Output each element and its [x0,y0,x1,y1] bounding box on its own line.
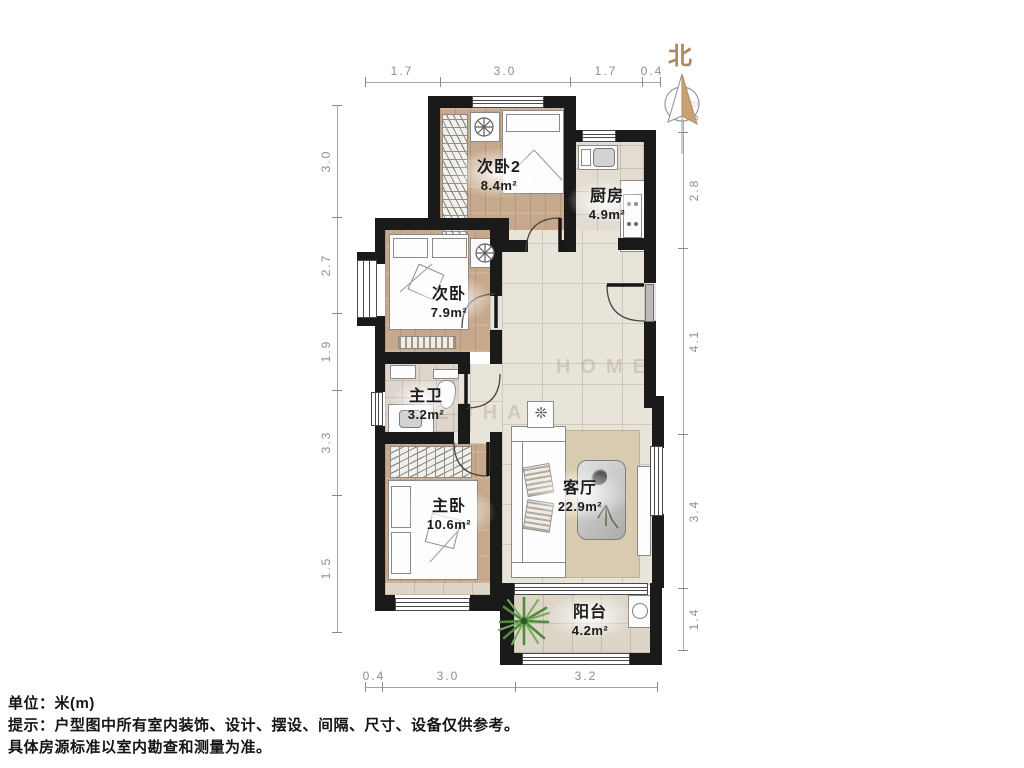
sofa-backrest [512,442,523,562]
wall [652,396,664,448]
bench [398,336,456,349]
room-name: 厨房 [589,182,625,206]
footer-tip-line1: 提示：户型图中所有室内装饰、设计、摆设、间隔、尺寸、设备仅供参考。 [8,714,520,735]
dimension-label: 2.8 [687,179,701,202]
bay-window [357,260,377,318]
nightstand [470,112,500,142]
wall [500,653,524,665]
dimension-label: 3.0 [437,669,460,683]
tick [440,77,441,87]
tick [678,434,688,435]
wall [560,240,576,252]
tick [678,588,688,589]
dimension-label: 1.7 [595,64,618,78]
dimension-line-top [365,82,660,83]
wall [458,364,470,374]
tick [332,390,342,391]
pillow [432,238,467,258]
room-area: 7.9m² [431,305,467,320]
tv-stand [637,466,651,556]
kitchen-utensil-box [581,149,591,166]
room-name: 次卧 [431,280,467,304]
wall [375,352,470,364]
tick [332,105,342,106]
room-label-balcony: 阳台 4.2m² [572,598,608,638]
window [472,96,544,108]
tick [657,682,658,692]
toilet-tank [433,369,459,379]
room-label-master-bath: 主卫 3.2m² [408,382,444,422]
room-name: 客厅 [558,474,602,498]
master-bay-window [395,598,470,611]
wall [375,595,395,611]
tick [678,650,688,651]
room-label-kitchen: 厨房 4.9m² [589,182,625,222]
dimension-label: 1.7 [391,64,414,78]
kitchen-sink-bowl [593,148,615,167]
pillow [391,532,411,574]
tick [570,77,571,87]
dimension-label: 3.3 [319,431,333,454]
room-label-living-room: 客厅 22.9m² [558,474,602,514]
entry-door-panel [645,284,654,322]
wall [357,318,377,326]
window [582,130,616,142]
wall [644,321,656,400]
wall [375,440,385,595]
dimension-label: 3.0 [494,64,517,78]
room-label-master-bedroom: 主卧 10.6m² [427,492,471,532]
wall [652,514,664,588]
master-bay-strip [385,583,490,595]
tick [678,248,688,249]
footer-tip-line2: 具体房源标准以室内勘查和测量为准。 [8,736,272,757]
room-label-bedroom: 次卧 7.9m² [431,280,467,320]
watermark-text: HOME [556,356,656,379]
dimension-label: 3.2 [575,669,598,683]
wash-basin [390,365,416,379]
tick [332,313,342,314]
room-name: 次卧2 [477,153,521,177]
room-area: 3.2m² [408,407,444,422]
sofa-armrest [512,427,565,442]
dimension-label: 1.4 [687,608,701,631]
room-area: 22.9m² [558,499,602,514]
dimension-line-left [337,105,338,632]
stove-burner [627,222,631,226]
wall [458,404,470,444]
dimension-label: 3.0 [319,150,333,173]
dimension-label: 3.4 [687,500,701,523]
room-area: 4.9m² [589,207,625,222]
stove-burner [634,222,638,226]
footer-unit: 单位：米(m) [8,692,95,713]
bath-window [371,392,383,426]
wall [490,230,502,296]
tick [365,682,366,692]
wardrobe [390,446,472,478]
dimension-label: 1.9 [319,340,333,363]
room-name: 主卫 [408,382,444,406]
wall [357,252,377,260]
living-window [650,446,663,516]
dimension-line-bottom [365,687,657,688]
plant-table-icon: ❊ [529,404,553,422]
wall [564,96,576,252]
pillow [393,238,428,258]
tick [332,495,342,496]
dimension-label: 0.4 [363,669,386,683]
wall [428,96,440,230]
room-area: 4.2m² [572,623,608,638]
tick [382,682,383,692]
wall [490,330,502,364]
floorplan-canvas: HOME ZUHAO [0,0,1024,768]
wall [618,238,656,250]
sofa-armrest [512,562,565,577]
dimension-label: 2.7 [319,254,333,277]
room-label-bedroom2: 次卧2 8.4m² [477,153,521,193]
pillow [506,114,560,132]
wall [375,360,385,392]
tick [365,77,366,87]
dimension-line-right [683,88,684,650]
compass-icon [656,64,708,156]
tick [515,682,516,692]
wall [375,432,454,444]
room-name: 阳台 [572,598,608,622]
tick [332,217,342,218]
room-area: 10.6m² [427,517,471,532]
wall [375,218,505,230]
room-name: 主卧 [427,492,471,516]
dimension-label: 4.1 [687,330,701,353]
room-area: 8.4m² [477,178,521,193]
balcony-window [522,653,630,665]
dimension-label: 1.5 [319,557,333,580]
tick [332,632,342,633]
tick [642,77,643,87]
wall [650,583,662,665]
